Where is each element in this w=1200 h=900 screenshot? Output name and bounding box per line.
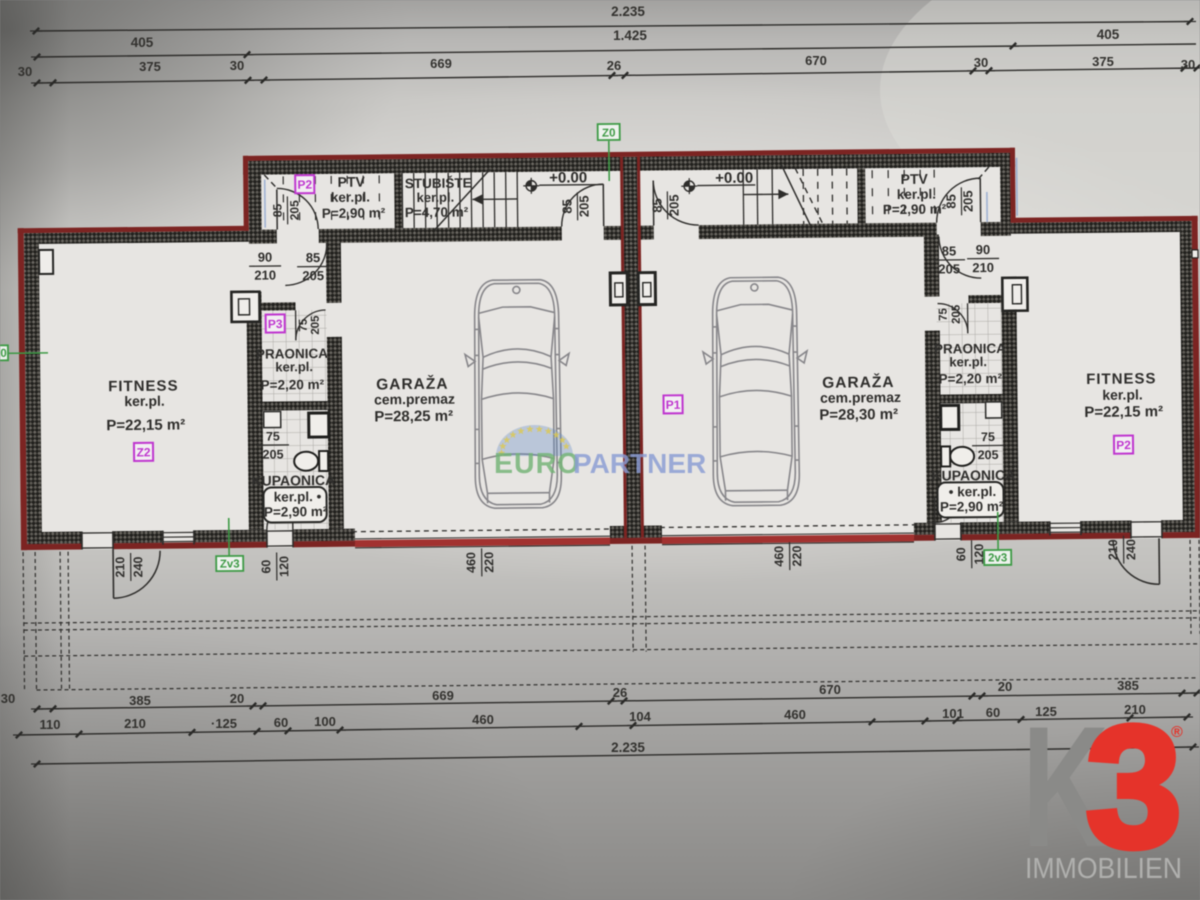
svg-text:405: 405 — [131, 35, 154, 50]
svg-text:ker.pl.: ker.pl. — [1102, 386, 1143, 402]
svg-text:P3: P3 — [268, 317, 283, 331]
svg-text:460: 460 — [784, 707, 806, 722]
svg-text:P=28,25 m²: P=28,25 m² — [374, 408, 453, 426]
svg-text:P=2,90 m²: P=2,90 m² — [322, 205, 386, 221]
svg-text:85: 85 — [306, 250, 321, 265]
svg-text:60: 60 — [274, 715, 288, 730]
svg-text:85: 85 — [270, 203, 284, 217]
svg-text:+0.00: +0.00 — [715, 169, 753, 186]
svg-text:210: 210 — [972, 260, 994, 275]
svg-text:IMMOBILIEN: IMMOBILIEN — [1025, 853, 1182, 885]
svg-text:60: 60 — [259, 560, 273, 574]
svg-text:669: 669 — [432, 688, 454, 703]
svg-text:210: 210 — [113, 557, 127, 578]
svg-text:405: 405 — [1097, 27, 1120, 42]
svg-text:P=2,90 m²: P=2,90 m² — [940, 499, 1004, 515]
svg-text:375: 375 — [1092, 54, 1114, 69]
svg-text:1.425: 1.425 — [613, 28, 647, 43]
svg-text:P=2,20 m²: P=2,20 m² — [939, 371, 1003, 387]
svg-text:85: 85 — [649, 198, 664, 213]
svg-text:• ker.pl.: • ker.pl. — [949, 484, 997, 499]
svg-text:P=22,15 m²: P=22,15 m² — [106, 416, 185, 434]
svg-text:PTV: PTV — [901, 171, 929, 187]
svg-text:240: 240 — [131, 556, 145, 577]
svg-text:205: 205 — [263, 447, 284, 461]
svg-text:P=22,15 m²: P=22,15 m² — [1084, 403, 1163, 421]
svg-text:205: 205 — [576, 195, 591, 217]
svg-text:460: 460 — [772, 546, 786, 567]
svg-text:375: 375 — [139, 59, 161, 74]
svg-text:100: 100 — [314, 714, 336, 729]
svg-text:KUPAONICA: KUPAONICA — [251, 472, 335, 489]
svg-text:2v3: 2v3 — [988, 552, 1007, 564]
svg-text:cem.premaz: cem.premaz — [820, 389, 901, 406]
svg-text:Z2: Z2 — [136, 445, 150, 459]
svg-text:205: 205 — [938, 261, 960, 276]
svg-text:75: 75 — [298, 318, 310, 332]
svg-text:P=4,70 m²: P=4,70 m² — [405, 204, 469, 220]
svg-text:210: 210 — [1106, 539, 1120, 560]
svg-text:30: 30 — [230, 58, 244, 73]
svg-text:30: 30 — [18, 64, 32, 79]
svg-text:85: 85 — [943, 194, 958, 209]
svg-text:+0.00: +0.00 — [549, 169, 587, 186]
svg-text:60: 60 — [954, 547, 968, 561]
svg-text:205: 205 — [287, 200, 301, 220]
svg-text:26: 26 — [613, 685, 627, 700]
svg-text:ker.pl.: ker.pl. — [417, 190, 455, 205]
svg-text:P=2,20 m²: P=2,20 m² — [261, 377, 325, 393]
svg-text:EURO: EURO — [494, 448, 580, 480]
svg-text:90: 90 — [976, 242, 991, 257]
svg-text:ker.pl.: ker.pl. — [124, 393, 165, 409]
svg-text:30: 30 — [1, 691, 15, 706]
svg-text:85: 85 — [942, 243, 957, 258]
svg-text:210: 210 — [124, 716, 146, 731]
svg-text:460: 460 — [464, 552, 478, 573]
svg-text:ker.pl.: ker.pl. — [897, 187, 936, 202]
svg-text:FITNESS: FITNESS — [1086, 370, 1157, 388]
svg-text:®: ® — [1171, 724, 1183, 741]
svg-text:20: 20 — [998, 679, 1012, 694]
svg-text:P1: P1 — [666, 398, 681, 412]
svg-text:P=2,90 m²: P=2,90 m² — [883, 201, 947, 217]
svg-text:75: 75 — [938, 307, 950, 321]
svg-text:cem.premaz: cem.premaz — [374, 391, 455, 408]
svg-text:75: 75 — [266, 429, 280, 443]
svg-text:205: 205 — [951, 304, 963, 324]
svg-text:90: 90 — [258, 250, 273, 265]
svg-text:Z0: Z0 — [602, 127, 616, 139]
svg-text:ker.pl. •: ker.pl. • — [274, 489, 322, 504]
svg-text:ker.pl.: ker.pl. — [949, 354, 987, 369]
svg-text:30: 30 — [974, 55, 988, 70]
svg-text:20: 20 — [230, 691, 244, 706]
svg-text:ker.pl.: ker.pl. — [275, 359, 313, 374]
svg-text:30: 30 — [1181, 57, 1195, 72]
svg-text:210: 210 — [254, 267, 276, 282]
svg-text:205: 205 — [978, 448, 999, 462]
svg-text:205: 205 — [960, 190, 975, 212]
svg-text:205: 205 — [302, 268, 324, 283]
svg-text:KUPAONICA: KUPAONICA — [931, 467, 1015, 484]
svg-text:26: 26 — [607, 58, 621, 73]
svg-text:669: 669 — [430, 56, 452, 71]
svg-text:385: 385 — [129, 693, 151, 708]
svg-text:670: 670 — [805, 53, 827, 68]
svg-text:101: 101 — [942, 706, 964, 721]
svg-text:P2: P2 — [1116, 438, 1131, 452]
svg-text:670: 670 — [819, 682, 841, 697]
svg-text:220: 220 — [790, 546, 804, 567]
svg-text:Zv3: Zv3 — [220, 558, 240, 570]
svg-text:PARTNER: PARTNER — [573, 448, 706, 479]
svg-text:P=2,90 m²: P=2,90 m² — [264, 504, 328, 520]
svg-text:60: 60 — [986, 705, 1000, 720]
svg-text:2.235: 2.235 — [611, 740, 645, 755]
svg-text:85: 85 — [559, 199, 574, 214]
svg-text:·125: ·125 — [211, 716, 237, 731]
svg-text:240: 240 — [1124, 539, 1138, 560]
svg-text:STUBIŠTE: STUBIŠTE — [405, 175, 472, 191]
svg-text:205: 205 — [666, 194, 681, 216]
svg-text:PTV: PTV — [338, 174, 366, 190]
svg-text:460: 460 — [472, 712, 494, 727]
svg-text:205: 205 — [310, 315, 322, 335]
svg-text:220: 220 — [482, 552, 496, 573]
svg-text:120: 120 — [277, 556, 291, 577]
svg-text:104: 104 — [629, 709, 651, 724]
svg-text:P2: P2 — [297, 178, 312, 192]
svg-text:2.235: 2.235 — [611, 4, 645, 19]
svg-text:110: 110 — [40, 717, 61, 732]
svg-text:ker.pl.: ker.pl. — [331, 190, 370, 205]
svg-text:P=28,30 m²: P=28,30 m² — [819, 406, 898, 424]
svg-text:75: 75 — [981, 430, 995, 444]
svg-text:Z0: Z0 — [0, 348, 7, 360]
